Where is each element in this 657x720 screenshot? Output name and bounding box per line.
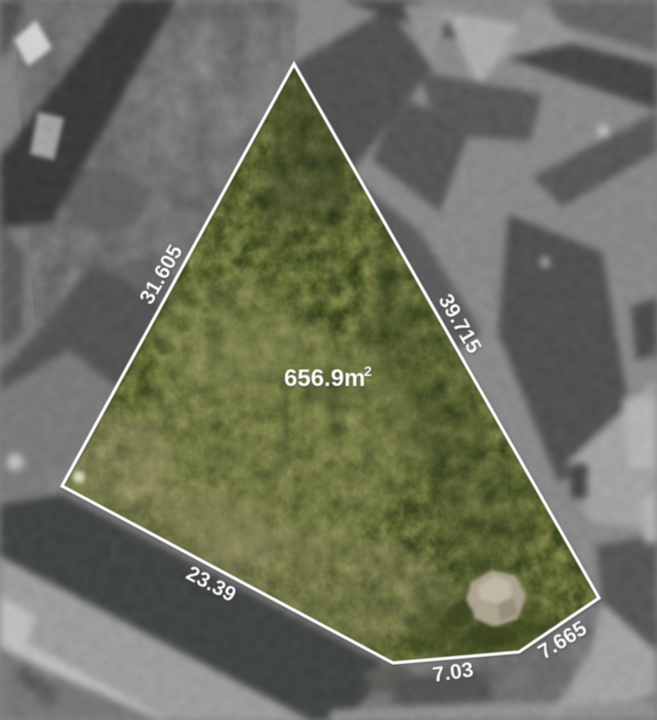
svg-text:2: 2 bbox=[364, 363, 372, 379]
svg-text:656.9m: 656.9m bbox=[284, 365, 365, 392]
